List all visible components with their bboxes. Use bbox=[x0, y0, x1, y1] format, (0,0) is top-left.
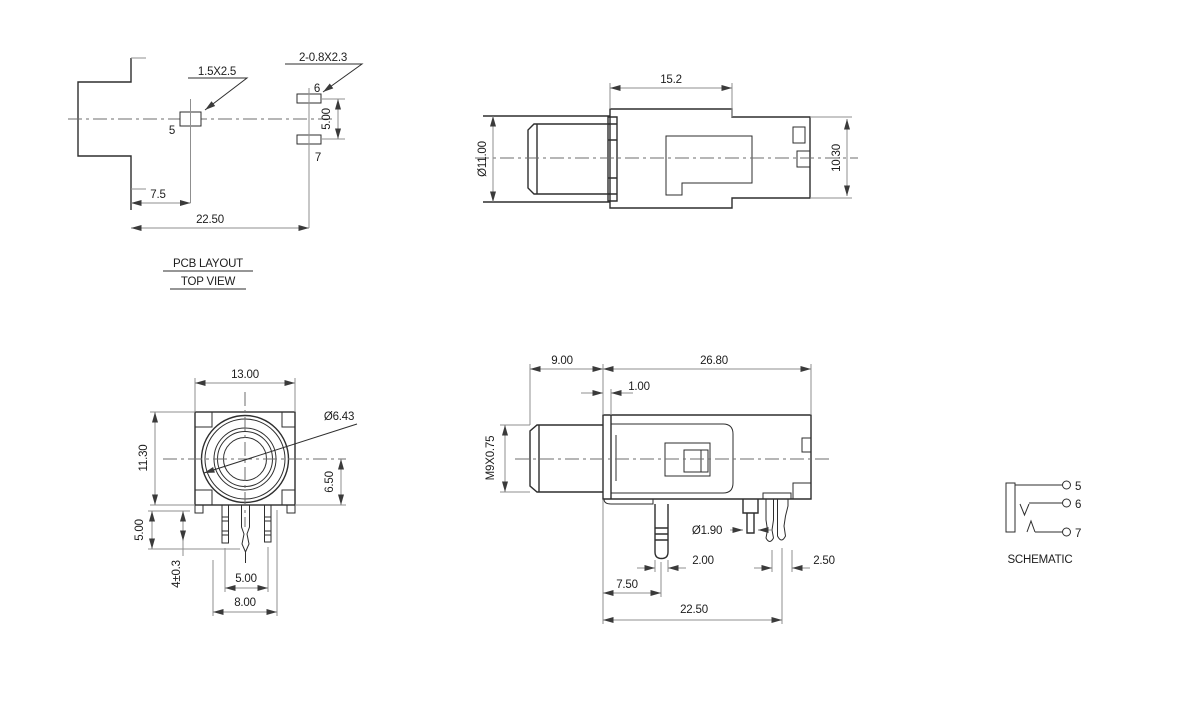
rear-detail-square bbox=[802, 438, 811, 452]
sleeve-symbol bbox=[1006, 483, 1015, 532]
front-tab-top-right bbox=[282, 412, 295, 427]
dim-pin-span-label: 8.00 bbox=[234, 597, 256, 609]
dim-pin-projection-label: 5.00 bbox=[134, 519, 146, 541]
pcb-layout-view: 1.5X2.5 2-0.8X2.3 5 6 7 5.00 7.5 22.50 P… bbox=[68, 52, 362, 289]
front-tab-bottom-right bbox=[282, 490, 295, 505]
dim-6-50-label: 6.50 bbox=[324, 471, 336, 493]
schematic-title: SCHEMATIC bbox=[1007, 554, 1072, 566]
dim-pad-spacing-label: 5.00 bbox=[321, 108, 333, 130]
view-subtitle-top-view: TOP VIEW bbox=[181, 276, 236, 288]
dim-1-90-label: Ø1.90 bbox=[692, 525, 722, 537]
schematic-pin7-label: 7 bbox=[1075, 528, 1081, 540]
pads67-callout-label: 2-0.8X2.3 bbox=[299, 52, 347, 64]
dim-2-50-label: 2.50 bbox=[813, 555, 835, 567]
dim-6-43-label: Ø6.43 bbox=[324, 411, 354, 423]
threaded-bushing bbox=[528, 124, 610, 194]
schematic-pin5-label: 5 bbox=[1075, 481, 1081, 493]
dim-11-30-label: 11.30 bbox=[138, 445, 150, 472]
front-post-left bbox=[195, 505, 203, 513]
dim-pin-pitch-label: 5.00 bbox=[235, 573, 257, 585]
drawing-canvas: 1.5X2.5 2-0.8X2.3 5 6 7 5.00 7.5 22.50 P… bbox=[0, 0, 1201, 708]
dim-10-30-label: 10.30 bbox=[831, 144, 843, 172]
front-post-right bbox=[287, 505, 295, 513]
contact-a-symbol bbox=[1027, 521, 1035, 532]
pad5-leader bbox=[188, 78, 247, 110]
technical-drawing-sheet: 1.5X2.5 2-0.8X2.3 5 6 7 5.00 7.5 22.50 P… bbox=[0, 0, 1201, 708]
front-pin-left bbox=[222, 505, 229, 543]
side-view-bottom: 9.00 26.80 1.00 M9X0.75 Ø1.90 2.00 2.50 … bbox=[485, 355, 835, 624]
front-pin-right bbox=[265, 505, 272, 542]
front-view: Ø6.43 13.00 11.30 6.50 5.00 4±0.3 5.00 8… bbox=[134, 369, 357, 616]
body-detail-rect bbox=[793, 127, 805, 143]
pcb-pin5-label: 5 bbox=[169, 125, 175, 137]
hole-dia-leader bbox=[204, 424, 357, 473]
pcb-pin7-label: 7 bbox=[315, 152, 321, 164]
rear-bottom-notch bbox=[793, 483, 811, 499]
fork-pin-left bbox=[766, 499, 774, 542]
side-view-top: 15.2 Ø11.00 10.30 bbox=[475, 74, 858, 208]
pin6-terminal bbox=[1063, 499, 1071, 507]
bottom-body-foot bbox=[604, 499, 653, 504]
front-pin-center bbox=[242, 505, 250, 563]
dim-1-00-label: 1.00 bbox=[628, 381, 650, 393]
side-view-extension-lines bbox=[610, 83, 852, 198]
front-tab-top-left bbox=[195, 412, 212, 427]
dim-22-50-label: 22.50 bbox=[196, 214, 224, 226]
middle-pin bbox=[743, 499, 758, 533]
dim-thread-label: M9X0.75 bbox=[485, 436, 497, 481]
dim-22-50b-label: 22.50 bbox=[680, 604, 708, 616]
view-title-pcb-layout: PCB LAYOUT bbox=[173, 258, 243, 270]
dim-11-00-label: Ø11.00 bbox=[477, 141, 489, 177]
schematic-view: 5 6 7 SCHEMATIC bbox=[1006, 481, 1081, 566]
contact-window-inner bbox=[684, 450, 708, 472]
bottom-extension-lines bbox=[500, 364, 811, 624]
pad5-callout-label: 1.5X2.5 bbox=[198, 66, 236, 78]
dim-15-2-label: 15.2 bbox=[660, 74, 682, 86]
barrel-silhouette bbox=[483, 116, 610, 202]
fork-pin-right bbox=[778, 499, 789, 540]
pcb-pin6-label: 6 bbox=[314, 83, 320, 95]
round-pin bbox=[655, 504, 668, 559]
contact-v-symbol bbox=[1020, 504, 1029, 515]
dim-2-00-label: 2.00 bbox=[692, 555, 714, 567]
pcb-board-outline bbox=[78, 58, 131, 210]
dim-9-00-label: 9.00 bbox=[551, 355, 573, 367]
dim-26-80-label: 26.80 bbox=[700, 355, 728, 367]
fork-pin-strip bbox=[763, 493, 791, 499]
dim-7-50-label: 7.50 bbox=[616, 579, 638, 591]
dim-13-00-label: 13.00 bbox=[231, 369, 259, 381]
dim-pin-length-label: 4±0.3 bbox=[171, 560, 183, 588]
pcb-edge-ticks bbox=[131, 58, 146, 189]
pin7-terminal bbox=[1063, 528, 1071, 536]
pin5-terminal bbox=[1063, 481, 1071, 489]
front-tab-bottom-left bbox=[195, 490, 212, 505]
dim-7-5-label: 7.5 bbox=[150, 189, 165, 201]
bottom-body-outline bbox=[603, 415, 811, 499]
pads67-leader bbox=[285, 64, 362, 92]
body-detail-square bbox=[797, 151, 810, 167]
body-internal-slot bbox=[666, 136, 752, 195]
schematic-pin6-label: 6 bbox=[1075, 499, 1081, 511]
